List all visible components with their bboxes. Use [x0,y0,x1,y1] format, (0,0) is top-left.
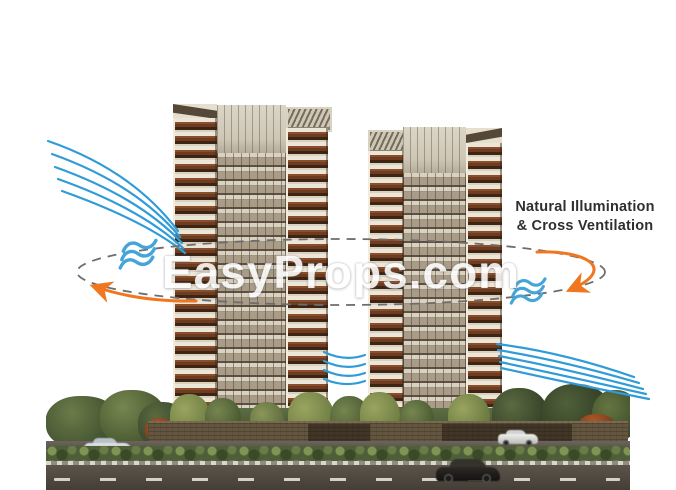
ventilation-label-line1: Natural Illumination [500,198,670,217]
wind-stream-lines-middle [324,352,365,384]
wind-waves-icon [116,239,159,269]
wind-stream-lines-right [497,344,649,399]
ventilation-label-line2: & Cross Ventilation [500,217,670,236]
wind-stream-lines-left [48,141,185,253]
marketing-graphic: EasyProps.com Natural Illumination & Cro… [0,0,676,490]
ventilation-label: Natural Illumination & Cross Ventilation [500,198,670,236]
watermark: EasyProps.com [162,245,520,299]
airflow-arrow-right-icon [537,252,594,289]
